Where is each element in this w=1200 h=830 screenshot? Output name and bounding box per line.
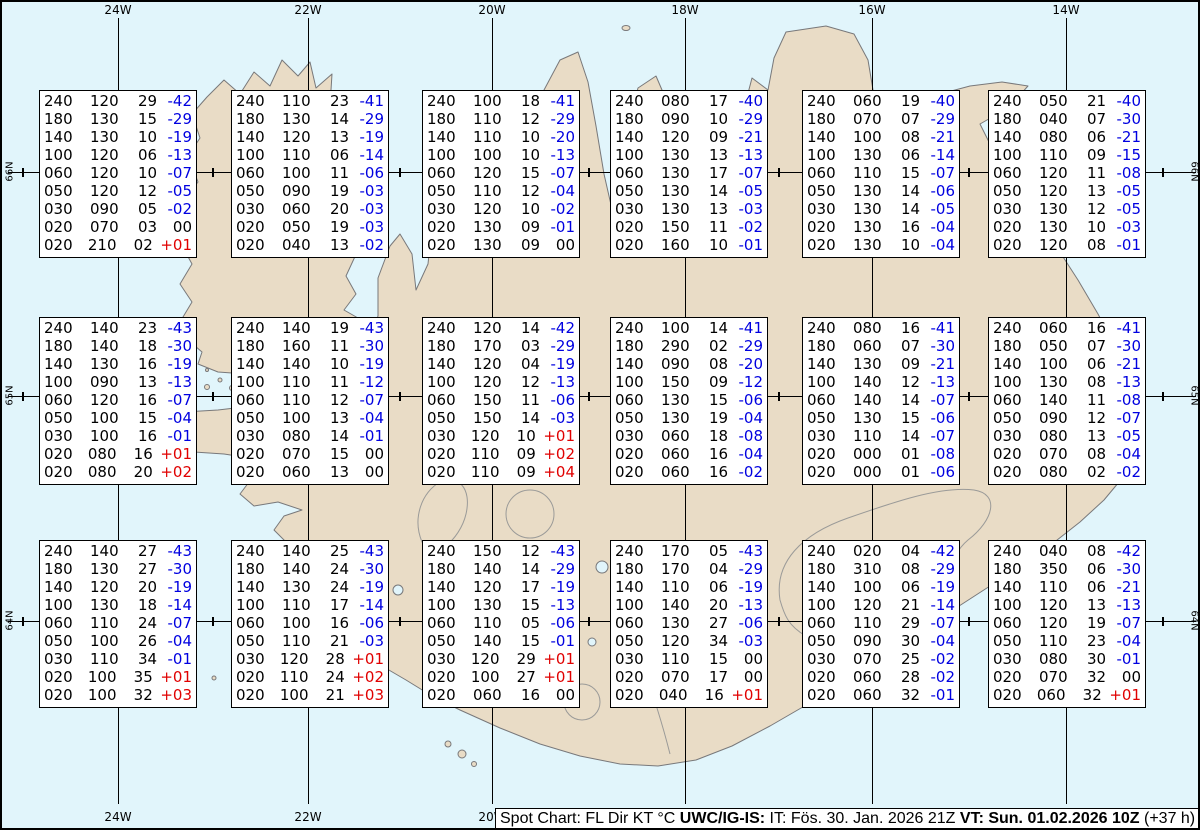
flight-level-cell: 050 [807,182,853,200]
spot-row: 10013013-13 [615,146,763,164]
temperature-cell: -07 [551,164,576,182]
wind-speed-cell: 02 [1087,463,1115,481]
temperature-cell: -19 [360,128,385,146]
flight-level-cell: 140 [44,128,90,146]
spot-box: 24006019-4018007007-2914010008-211001300… [802,90,960,258]
spot-row: 06013017-07 [615,164,763,182]
spot-box-layer: 24012029-4218013015-2914013010-191001200… [2,2,1198,828]
temperature-cell: -19 [551,578,576,596]
wind-direction-cell: 070 [90,218,138,236]
wind-direction-cell: 140 [282,560,330,578]
temperature-cell: -29 [551,560,576,578]
wind-direction-cell: 050 [282,218,330,236]
flight-level-cell: 030 [236,427,282,445]
wind-speed-cell: 23 [330,92,358,110]
temperature-cell: -19 [168,355,193,373]
spot-row: 02013010-04 [807,236,955,254]
temperature-cell: -05 [1117,427,1142,445]
wind-direction-cell: 110 [282,373,330,391]
wind-direction-cell: 120 [90,391,138,409]
wind-speed-cell: 08 [901,128,929,146]
flight-level-cell: 100 [993,596,1039,614]
temperature-cell: -05 [1117,200,1142,218]
wind-direction-cell: 130 [661,146,709,164]
temperature-cell: -04 [360,409,385,427]
spot-row: 02006016-04 [615,445,763,463]
wind-speed-cell: 18 [138,337,166,355]
wind-direction-cell: 140 [1039,391,1087,409]
wind-speed-cell: 09 [709,128,737,146]
spot-row: 24014027-43 [44,542,192,560]
flight-level-cell: 240 [44,319,90,337]
wind-speed-cell: 32 [134,686,161,704]
temperature-cell: 00 [744,668,763,686]
flight-level-cell: 240 [993,319,1039,337]
temperature-cell: +01 [731,686,763,704]
wind-speed-cell: 19 [1087,614,1115,632]
temperature-cell: -03 [739,632,764,650]
wind-speed-cell: 28 [901,668,929,686]
wind-direction-cell: 110 [90,650,138,668]
temperature-cell: -30 [360,337,385,355]
flight-level-cell: 180 [427,110,473,128]
wind-speed-cell: 14 [901,182,929,200]
spot-box: 24012014-4218017003-2914012004-191001201… [422,317,580,485]
spot-row: 06011012-07 [236,391,384,409]
temperature-cell: -07 [1117,614,1142,632]
wind-direction-cell: 100 [280,686,326,704]
temperature-cell: +01 [1109,686,1141,704]
flight-level-cell: 140 [236,578,282,596]
wind-direction-cell: 040 [282,236,330,254]
flight-level-cell: 180 [615,560,661,578]
temperature-cell: -43 [360,542,385,560]
temperature-cell: -03 [551,409,576,427]
flight-level-cell: 030 [993,200,1039,218]
wind-direction-cell: 100 [473,146,521,164]
spot-row: 18016011-30 [236,337,384,355]
wind-speed-cell: 18 [521,92,549,110]
wind-speed-cell: 27 [709,614,737,632]
spot-row: 24012029-42 [44,92,192,110]
spot-row: 06011029-07 [807,614,955,632]
wind-speed-cell: 27 [138,542,166,560]
temperature-cell: -07 [168,391,193,409]
spot-box: 24005021-4018004007-3014008006-211001100… [988,90,1146,258]
wind-direction-cell: 130 [853,409,901,427]
wind-direction-cell: 120 [90,92,138,110]
temperature-cell: -04 [1117,632,1142,650]
spot-row: 05013015-06 [807,409,955,427]
flight-level-cell: 020 [427,668,471,686]
wind-direction-cell: 090 [282,182,330,200]
flight-level-cell: 030 [427,427,471,445]
wind-direction-cell: 110 [280,668,326,686]
wind-direction-cell: 080 [853,319,901,337]
temperature-cell: -29 [168,110,193,128]
wind-direction-cell: 120 [90,182,138,200]
temperature-cell: -04 [931,632,956,650]
wind-direction-cell: 050 [1039,92,1087,110]
wind-speed-cell: 25 [901,650,929,668]
wind-speed-cell: 16 [705,686,732,704]
spot-row: 18017004-29 [615,560,763,578]
flight-level-cell: 060 [236,614,282,632]
wind-direction-cell: 110 [1039,146,1087,164]
wind-direction-cell: 090 [661,355,709,373]
flight-level-cell: 060 [44,614,90,632]
spot-row: 14013010-19 [44,128,192,146]
wind-speed-cell: 09 [1087,146,1115,164]
temperature-cell: 00 [365,463,384,481]
wind-speed-cell: 03 [138,218,166,236]
flight-level-cell: 140 [807,578,853,596]
flight-level-cell: 020 [615,686,659,704]
spot-row: 14012017-19 [427,578,575,596]
flight-level-cell: 050 [427,182,473,200]
spot-row: 24010014-41 [615,319,763,337]
spot-row: 02021002+01 [44,236,192,254]
wind-speed-cell: 34 [138,650,166,668]
wind-direction-cell: 040 [659,686,705,704]
flight-level-cell: 240 [236,92,282,110]
wind-speed-cell: 08 [1087,373,1115,391]
flight-level-cell: 030 [615,200,661,218]
temperature-cell: +01 [543,427,575,445]
wind-direction-cell: 350 [1039,560,1087,578]
wind-speed-cell: 04 [521,355,549,373]
wind-direction-cell: 130 [853,355,901,373]
wind-speed-cell: 13 [1087,596,1115,614]
spot-row: 24014023-43 [44,319,192,337]
temperature-cell: -14 [168,596,193,614]
temperature-cell: -03 [739,200,764,218]
temperature-cell: -02 [931,650,956,668]
flight-level-cell: 060 [993,391,1039,409]
temperature-cell: -43 [168,542,193,560]
wind-speed-cell: 35 [134,668,161,686]
flight-level-cell: 060 [427,614,473,632]
wind-speed-cell: 21 [1087,92,1115,110]
temperature-cell: -02 [931,668,956,686]
spot-row: 24006019-40 [807,92,955,110]
spot-row: 05009019-03 [236,182,384,200]
spot-row: 05011021-03 [236,632,384,650]
flight-level-cell: 140 [615,355,661,373]
spot-row: 05010013-04 [236,409,384,427]
temperature-cell: -30 [1117,560,1142,578]
wind-direction-cell: 140 [282,542,330,560]
wind-speed-cell: 17 [521,578,549,596]
flight-level-cell: 100 [427,146,473,164]
spot-row: 14010006-21 [993,355,1141,373]
flight-level-cell: 050 [993,632,1039,650]
flight-level-cell: 030 [44,427,90,445]
flight-level-cell: 180 [993,110,1039,128]
wind-direction-cell: 130 [1039,218,1087,236]
temperature-cell: -30 [1117,110,1142,128]
temperature-cell: -21 [931,128,956,146]
spot-row: 02012008-01 [993,236,1141,254]
temperature-cell: -21 [1117,578,1142,596]
wind-speed-cell: 29 [901,614,929,632]
wind-direction-cell: 100 [282,614,330,632]
temperature-cell: -29 [551,110,576,128]
flight-level-cell: 240 [44,542,90,560]
spot-row: 05010015-04 [44,409,192,427]
flight-level-cell: 140 [427,578,473,596]
spot-row: 18014018-30 [44,337,192,355]
wind-direction-cell: 110 [473,110,521,128]
wind-direction-cell: 130 [661,200,709,218]
flight-level-cell: 020 [427,445,471,463]
wind-direction-cell: 130 [90,596,138,614]
flight-level-cell: 050 [236,409,282,427]
spot-row: 02013016-04 [807,218,955,236]
wind-direction-cell: 110 [282,92,330,110]
wind-direction-cell: 060 [661,463,709,481]
wind-speed-cell: 05 [521,614,549,632]
spot-row: 18035006-30 [993,560,1141,578]
temperature-cell: -41 [1117,319,1142,337]
wind-direction-cell: 120 [1039,614,1087,632]
flight-level-cell: 060 [615,391,661,409]
flight-level-cell: 100 [427,373,473,391]
wind-speed-cell: 08 [1087,445,1115,463]
temperature-cell: 00 [173,218,192,236]
wind-direction-cell: 210 [88,236,134,254]
temperature-cell: -01 [360,427,385,445]
spot-row: 05011023-04 [993,632,1141,650]
wind-direction-cell: 020 [853,542,901,560]
wind-speed-cell: 09 [709,373,737,391]
wind-speed-cell: 06 [709,578,737,596]
wind-speed-cell: 27 [138,560,166,578]
spot-row: 10011017-14 [236,596,384,614]
spot-row: 14011010-20 [427,128,575,146]
flight-level-cell: 020 [427,218,473,236]
wind-speed-cell: 12 [1087,200,1115,218]
flight-level-cell: 240 [993,542,1039,560]
flight-level-cell: 240 [427,542,473,560]
spot-row: 24017005-43 [615,542,763,560]
wind-speed-cell: 07 [1087,110,1115,128]
temperature-cell: -06 [360,164,385,182]
flight-level-cell: 020 [44,463,88,481]
wind-direction-cell: 130 [90,128,138,146]
temperature-cell: -43 [551,542,576,560]
wind-direction-cell: 100 [90,427,138,445]
wind-direction-cell: 080 [661,92,709,110]
temperature-cell: -07 [168,164,193,182]
spot-row: 02006032+01 [993,686,1141,704]
spot-row: 18004007-30 [993,110,1141,128]
wind-direction-cell: 120 [1039,182,1087,200]
spot-row: 10015009-12 [615,373,763,391]
spot-row: 14010008-21 [807,128,955,146]
spot-row: 24008017-40 [615,92,763,110]
temperature-cell: -14 [360,146,385,164]
wind-speed-cell: 12 [521,373,549,391]
flight-level-cell: 240 [807,319,853,337]
wind-speed-cell: 13 [330,128,358,146]
spot-row: 14011006-21 [993,578,1141,596]
spot-row: 03011014-07 [807,427,955,445]
spot-row: 02004013-02 [236,236,384,254]
flight-level-cell: 180 [44,337,90,355]
flight-level-cell: 140 [44,578,90,596]
wind-direction-cell: 060 [1037,686,1083,704]
wind-direction-cell: 120 [853,596,901,614]
wind-speed-cell: 15 [901,409,929,427]
wind-speed-cell: 15 [709,391,737,409]
wind-direction-cell: 070 [282,445,330,463]
flight-level-cell: 060 [615,614,661,632]
flight-level-cell: 060 [807,614,853,632]
wind-speed-cell: 05 [709,542,737,560]
temperature-cell: 00 [556,236,575,254]
spot-row: 03006018-08 [615,427,763,445]
flight-level-cell: 050 [44,182,90,200]
wind-direction-cell: 040 [1039,542,1087,560]
wind-direction-cell: 120 [1039,164,1087,182]
status-text-issue-time: IT: Fös. 30. Jan. 2026 21Z [765,810,960,827]
spot-row: 02008020+02 [44,463,192,481]
flight-level-cell: 050 [427,632,473,650]
wind-direction-cell: 130 [661,614,709,632]
spot-row: 10014012-13 [807,373,955,391]
temperature-cell: -19 [360,355,385,373]
wind-direction-cell: 060 [853,668,901,686]
spot-box: 24008016-4118006007-3014013009-211001401… [802,317,960,485]
wind-direction-cell: 160 [661,236,709,254]
spot-box: 24014025-4318014024-3014013024-191001101… [231,540,389,708]
wind-speed-cell: 05 [138,200,166,218]
flight-level-cell: 050 [236,182,282,200]
wind-direction-cell: 060 [282,463,330,481]
flight-level-cell: 020 [993,686,1037,704]
temperature-cell: +04 [543,463,575,481]
spot-row: 14012013-19 [236,128,384,146]
wind-direction-cell: 120 [471,427,517,445]
wind-direction-cell: 000 [853,463,901,481]
wind-direction-cell: 130 [661,164,709,182]
temperature-cell: -07 [1117,409,1142,427]
spot-row: 05013014-05 [615,182,763,200]
wind-direction-cell: 140 [473,632,521,650]
spot-row: 06014014-07 [807,391,955,409]
wind-direction-cell: 100 [282,409,330,427]
spot-row: 18011012-29 [427,110,575,128]
spot-row: 18014024-30 [236,560,384,578]
spot-row: 18017003-29 [427,337,575,355]
flight-level-cell: 180 [993,337,1039,355]
wind-speed-cell: 17 [709,164,737,182]
wind-direction-cell: 150 [661,218,709,236]
temperature-cell: -06 [931,409,956,427]
temperature-cell: -04 [168,409,193,427]
wind-speed-cell: 15 [138,110,166,128]
wind-direction-cell: 070 [661,668,709,686]
wind-direction-cell: 100 [1039,355,1087,373]
wind-speed-cell: 18 [138,596,166,614]
flight-level-cell: 100 [44,373,90,391]
temperature-cell: -03 [1117,218,1142,236]
flight-level-cell: 140 [44,355,90,373]
wind-direction-cell: 110 [1039,632,1087,650]
wind-direction-cell: 120 [1039,236,1087,254]
spot-row: 02008016+01 [44,445,192,463]
spot-row: 14008006-21 [993,128,1141,146]
spot-row: 05010026-04 [44,632,192,650]
spot-row: 02016010-01 [615,236,763,254]
wind-direction-cell: 150 [661,373,709,391]
temperature-cell: -07 [360,391,385,409]
temperature-cell: -07 [931,614,956,632]
spot-box: 24004008-4218035006-3014011006-211001201… [988,540,1146,708]
temperature-cell: -04 [931,218,956,236]
wind-speed-cell: 14 [330,110,358,128]
wind-speed-cell: 14 [901,427,929,445]
flight-level-cell: 100 [427,596,473,614]
flight-level-cell: 050 [615,632,661,650]
temperature-cell: -42 [551,319,576,337]
spot-row: 02010035+01 [44,668,192,686]
wind-speed-cell: 19 [901,92,929,110]
wind-direction-cell: 130 [90,110,138,128]
temperature-cell: +01 [160,236,192,254]
temperature-cell: -29 [360,110,385,128]
flight-level-cell: 050 [993,182,1039,200]
spot-row: 0301101500 [615,650,763,668]
wind-speed-cell: 10 [521,128,549,146]
spot-row: 18007007-29 [807,110,955,128]
temperature-cell: -08 [1117,164,1142,182]
flight-level-cell: 180 [44,110,90,128]
spot-row: 02006032-01 [807,686,955,704]
wind-speed-cell: 10 [1087,218,1115,236]
flight-level-cell: 180 [807,337,853,355]
wind-direction-cell: 110 [471,445,517,463]
wind-direction-cell: 120 [1039,596,1087,614]
spot-row: 03010016-01 [44,427,192,445]
flight-level-cell: 020 [807,445,853,463]
wind-direction-cell: 070 [853,650,901,668]
temperature-cell: -04 [739,409,764,427]
temperature-cell: -13 [1117,373,1142,391]
flight-level-cell: 020 [615,236,661,254]
flight-level-cell: 020 [993,236,1039,254]
flight-level-cell: 140 [615,128,661,146]
temperature-cell: -20 [551,128,576,146]
flight-level-cell: 030 [427,200,473,218]
flight-level-cell: 240 [615,542,661,560]
flight-level-cell: 060 [993,614,1039,632]
temperature-cell: -06 [739,391,764,409]
flight-level-cell: 100 [236,373,282,391]
flight-level-cell: 140 [427,355,473,373]
wind-direction-cell: 110 [473,182,521,200]
spot-row: 03013012-05 [993,200,1141,218]
spot-row: 24005021-40 [993,92,1141,110]
temperature-cell: 00 [744,650,763,668]
flight-level-cell: 100 [44,146,90,164]
wind-direction-cell: 140 [853,373,901,391]
spot-row: 06010011-06 [236,164,384,182]
wind-speed-cell: 32 [1083,686,1110,704]
flight-level-cell: 020 [807,668,853,686]
temperature-cell: -05 [1117,182,1142,200]
